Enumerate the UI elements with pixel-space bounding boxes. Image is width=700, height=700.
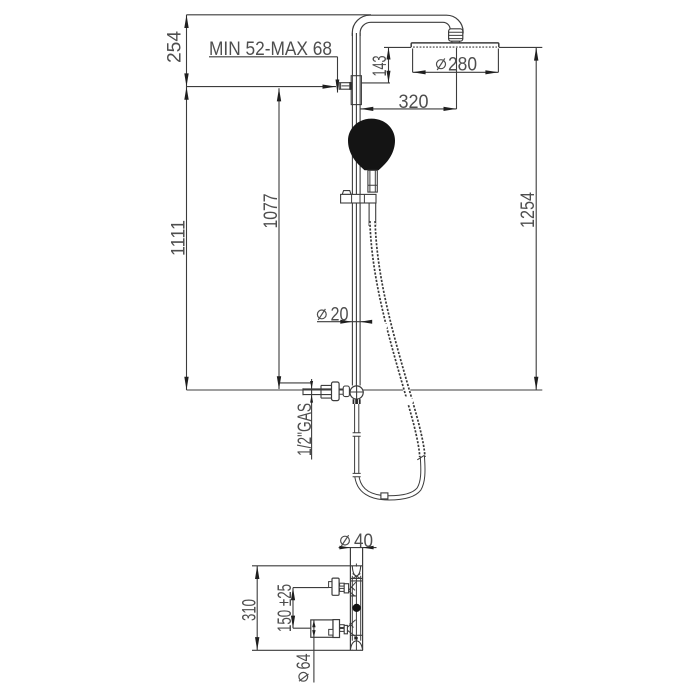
svg-text:1254: 1254 [518,192,539,228]
svg-text:20: 20 [331,304,349,325]
svg-text:320: 320 [399,92,429,113]
svg-text:1077: 1077 [261,194,282,229]
svg-text:1111: 1111 [169,220,190,256]
svg-text:254: 254 [165,31,186,63]
svg-text:1/2"GAS: 1/2"GAS [295,403,316,456]
svg-text:143: 143 [370,56,391,77]
svg-text:64: 64 [294,653,315,669]
svg-text:MIN 52-MAX 68: MIN 52-MAX 68 [209,39,332,60]
svg-text:40: 40 [354,531,373,552]
svg-text:310: 310 [240,599,261,621]
svg-text:280: 280 [448,54,477,75]
svg-text:150 ±25: 150 ±25 [275,584,296,632]
